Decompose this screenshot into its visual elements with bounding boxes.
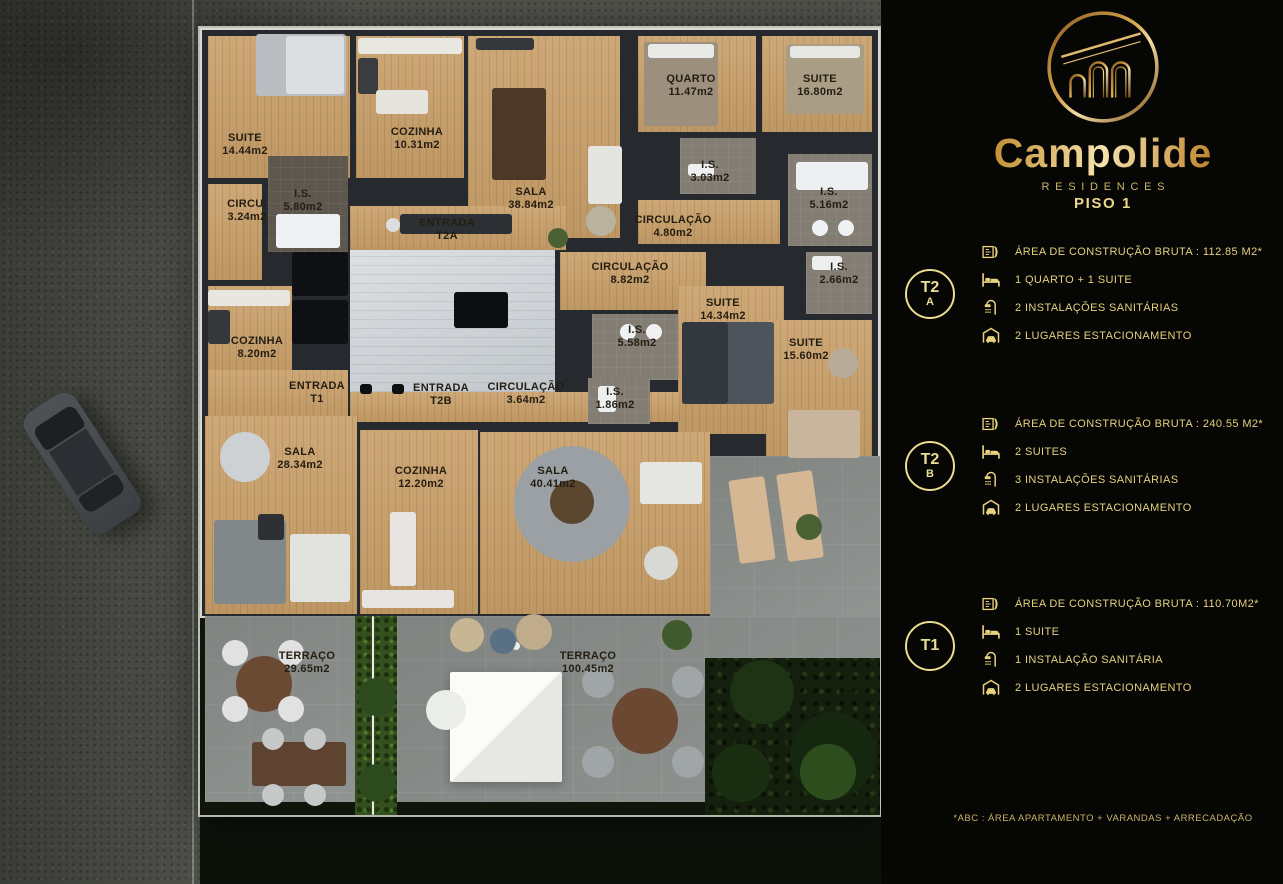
poster: SUITE 14.44m2COZINHA 10.31m2SALA 38.84m2…	[0, 0, 1283, 884]
garden-shadow	[200, 810, 881, 884]
label-is-186: I.S. 1.86m2	[595, 386, 634, 412]
bed-pillow	[648, 44, 714, 58]
side-table	[490, 628, 516, 654]
label-circulacao-364: CIRCULAÇÃO 3.64m2	[488, 381, 565, 407]
armchair	[828, 348, 858, 378]
bed-blanket	[682, 322, 728, 404]
label-terraco-2965: TERRAÇO 29.65m2	[279, 650, 336, 676]
chair	[672, 746, 704, 778]
aqueduct-logo-icon	[1042, 6, 1164, 128]
shower-icon	[981, 298, 1001, 318]
palm-tree	[800, 744, 856, 800]
label-entrada-t1: ENTRADA T1	[289, 380, 345, 406]
garage-icon	[981, 498, 1001, 518]
stove	[208, 310, 230, 344]
elevator-cab	[454, 292, 508, 328]
spec-text: 2 SUITES	[1015, 446, 1067, 458]
label-sala-4041: SALA 40.41m2	[530, 465, 576, 491]
brand-name: Campolide	[902, 130, 1283, 177]
toilet	[812, 220, 828, 236]
floor-title: PISO 1	[902, 195, 1283, 212]
unit-T2B: T2BÁREA DE CONSTRUÇÃO BRUTA : 240.55 M2*…	[881, 410, 1283, 522]
chair	[672, 666, 704, 698]
chair	[278, 696, 304, 722]
label-is-516: I.S. 5.16m2	[809, 186, 848, 212]
label-cozinha-820: COZINHA 8.20m2	[231, 335, 283, 361]
unit-code: T2	[921, 452, 940, 468]
door-arrow	[392, 384, 404, 394]
spec-row: 2 SUITES	[981, 438, 1283, 466]
spec-text: ÁREA DE CONSTRUÇÃO BRUTA : 112.85 M2*	[1015, 246, 1262, 258]
chair	[304, 728, 326, 750]
garage-icon	[981, 678, 1001, 698]
sideboard	[476, 38, 534, 50]
spec-text: 3 INSTALAÇÕES SANITÁRIAS	[1015, 474, 1178, 486]
spec-rows: ÁREA DE CONSTRUÇÃO BRUTA : 110.70M2*1 SU…	[981, 590, 1283, 702]
kitchen-island	[376, 90, 428, 114]
spec-row: 2 LUGARES ESTACIONAMENTO	[981, 322, 1283, 350]
shower-icon	[981, 470, 1001, 490]
info-panel: Campolide RESIDENCES PISO 1 T2AÁREA DE C…	[881, 0, 1283, 884]
round-table	[220, 432, 270, 482]
tree	[730, 660, 794, 724]
sofa	[588, 146, 622, 204]
label-sala-3884: SALA 38.84m2	[508, 186, 554, 212]
label-is-303: I.S. 3.03m2	[690, 159, 729, 185]
unit-variant: A	[926, 297, 934, 308]
blueprint-icon	[981, 414, 1001, 434]
unit-T2A: T2AÁREA DE CONSTRUÇÃO BRUTA : 112.85 M2*…	[881, 238, 1283, 350]
spec-text: 1 INSTALAÇÃO SANITÁRIA	[1015, 654, 1163, 666]
kitchen-counter	[362, 590, 454, 608]
floor-plan: SUITE 14.44m2COZINHA 10.31m2SALA 38.84m2…	[200, 28, 880, 815]
sofa	[290, 534, 350, 602]
shower-icon	[981, 650, 1001, 670]
chair	[222, 640, 248, 666]
spec-row: 2 LUGARES ESTACIONAMENTO	[981, 674, 1283, 702]
spec-text: ÁREA DE CONSTRUÇÃO BRUTA : 240.55 M2*	[1015, 418, 1263, 430]
plant	[796, 514, 822, 540]
bed-icon	[981, 622, 1001, 642]
entry-stool	[386, 218, 400, 232]
fridge	[358, 58, 378, 94]
kitchen-counter	[358, 38, 462, 54]
bed-icon	[981, 442, 1001, 462]
spec-row: 3 INSTALAÇÕES SANITÁRIAS	[981, 466, 1283, 494]
spec-text: 2 LUGARES ESTACIONAMENTO	[1015, 502, 1192, 514]
stair-core	[350, 250, 555, 392]
sofa	[640, 462, 702, 504]
label-is-266: I.S. 2.66m2	[819, 261, 858, 287]
spec-row: 1 QUARTO + 1 SUITE	[981, 266, 1283, 294]
curb-line	[192, 0, 194, 884]
label-cozinha-1220: COZINHA 12.20m2	[395, 465, 447, 491]
spec-text: 2 LUGARES ESTACIONAMENTO	[1015, 330, 1192, 342]
unit-T1: T1ÁREA DE CONSTRUÇÃO BRUTA : 110.70M2*1 …	[881, 590, 1283, 702]
unit-badge-T1: T1	[905, 621, 955, 671]
blueprint-icon	[981, 594, 1001, 614]
label-circulacao-480: CIRCULAÇÃO 4.80m2	[635, 214, 712, 240]
spec-row: ÁREA DE CONSTRUÇÃO BRUTA : 110.70M2*	[981, 590, 1283, 618]
label-suite-1444: SUITE 14.44m2	[222, 132, 268, 158]
bush	[358, 678, 396, 716]
plant	[662, 620, 692, 650]
umbrella	[426, 690, 466, 730]
tree	[712, 744, 770, 802]
unit-code: T1	[921, 638, 940, 654]
garage-icon	[981, 326, 1001, 346]
bed-pillow	[790, 46, 860, 58]
lounge-chair	[516, 614, 552, 650]
label-terraco-10045: TERRAÇO 100.45m2	[560, 650, 617, 676]
blueprint-icon	[981, 242, 1001, 262]
room-cozinha-1220	[360, 430, 478, 614]
unit-badge-T2B: T2B	[905, 441, 955, 491]
label-entrada-t2a: ENTRADA T2A	[419, 217, 475, 243]
label-quarto-1147: QUARTO 11.47m2	[666, 73, 715, 99]
round-table	[612, 688, 678, 754]
spec-rows: ÁREA DE CONSTRUÇÃO BRUTA : 240.55 M2*2 S…	[981, 410, 1283, 522]
site-scene: SUITE 14.44m2COZINHA 10.31m2SALA 38.84m2…	[0, 0, 881, 884]
spec-text: 1 SUITE	[1015, 626, 1059, 638]
label-suite-1434: SUITE 14.34m2	[700, 297, 746, 323]
unit-variant: B	[926, 469, 934, 480]
footnote: *ABC : ÁREA APARTAMENTO + VARANDAS + ARR…	[902, 813, 1283, 824]
spec-row: 2 LUGARES ESTACIONAMENTO	[981, 494, 1283, 522]
label-sala-2834: SALA 28.34m2	[277, 446, 323, 472]
spec-text: 1 QUARTO + 1 SUITE	[1015, 274, 1132, 286]
dining-table	[492, 88, 546, 180]
chair	[582, 746, 614, 778]
spec-row: 1 INSTALAÇÃO SANITÁRIA	[981, 646, 1283, 674]
plant	[548, 228, 568, 248]
bush	[358, 764, 396, 802]
spec-text: ÁREA DE CONSTRUÇÃO BRUTA : 110.70M2*	[1015, 598, 1259, 610]
label-suite-1560: SUITE 15.60m2	[783, 337, 829, 363]
chair	[262, 728, 284, 750]
label-circulacao-882: CIRCULAÇÃO 8.82m2	[592, 261, 669, 287]
brand-tagline: RESIDENCES	[902, 181, 1283, 193]
coffee-table	[258, 514, 284, 540]
elevator-shaft	[292, 252, 348, 296]
label-cozinha-1031: COZINHA 10.31m2	[391, 126, 443, 152]
unit-code: T2	[921, 280, 940, 296]
label-is-558: I.S. 5.58m2	[617, 324, 656, 350]
bed	[788, 410, 860, 458]
spec-text: 2 LUGARES ESTACIONAMENTO	[1015, 682, 1192, 694]
chair	[222, 696, 248, 722]
label-circu-324: CIRCU. 3.24m2	[227, 198, 267, 224]
bed-duvet	[286, 36, 344, 94]
door-arrow	[360, 384, 372, 394]
canopy	[450, 672, 562, 782]
label-entrada-t2b: ENTRADA T2B	[413, 382, 469, 408]
armchair	[586, 206, 616, 236]
spec-row: ÁREA DE CONSTRUÇÃO BRUTA : 112.85 M2*	[981, 238, 1283, 266]
kitchen-island	[390, 512, 416, 586]
rect-table	[252, 742, 346, 786]
spec-row: ÁREA DE CONSTRUÇÃO BRUTA : 240.55 M2*	[981, 410, 1283, 438]
bidet	[838, 220, 854, 236]
unit-badge-T2A: T2A	[905, 269, 955, 319]
kitchen-counter	[208, 290, 290, 306]
spec-row: 1 SUITE	[981, 618, 1283, 646]
bed-icon	[981, 270, 1001, 290]
spec-row: 2 INSTALAÇÕES SANITÁRIAS	[981, 294, 1283, 322]
label-is-580: I.S. 5.80m2	[283, 188, 322, 214]
chair	[262, 784, 284, 806]
bathtub	[276, 214, 340, 248]
spec-rows: ÁREA DE CONSTRUÇÃO BRUTA : 112.85 M2*1 Q…	[981, 238, 1283, 350]
elevator-shaft	[292, 300, 348, 344]
armchair	[644, 546, 678, 580]
spec-text: 2 INSTALAÇÕES SANITÁRIAS	[1015, 302, 1178, 314]
chair	[304, 784, 326, 806]
lounge-chair	[450, 618, 484, 652]
brand-logo: Campolide RESIDENCES	[902, 6, 1283, 193]
label-suite-1680: SUITE 16.80m2	[797, 73, 843, 99]
